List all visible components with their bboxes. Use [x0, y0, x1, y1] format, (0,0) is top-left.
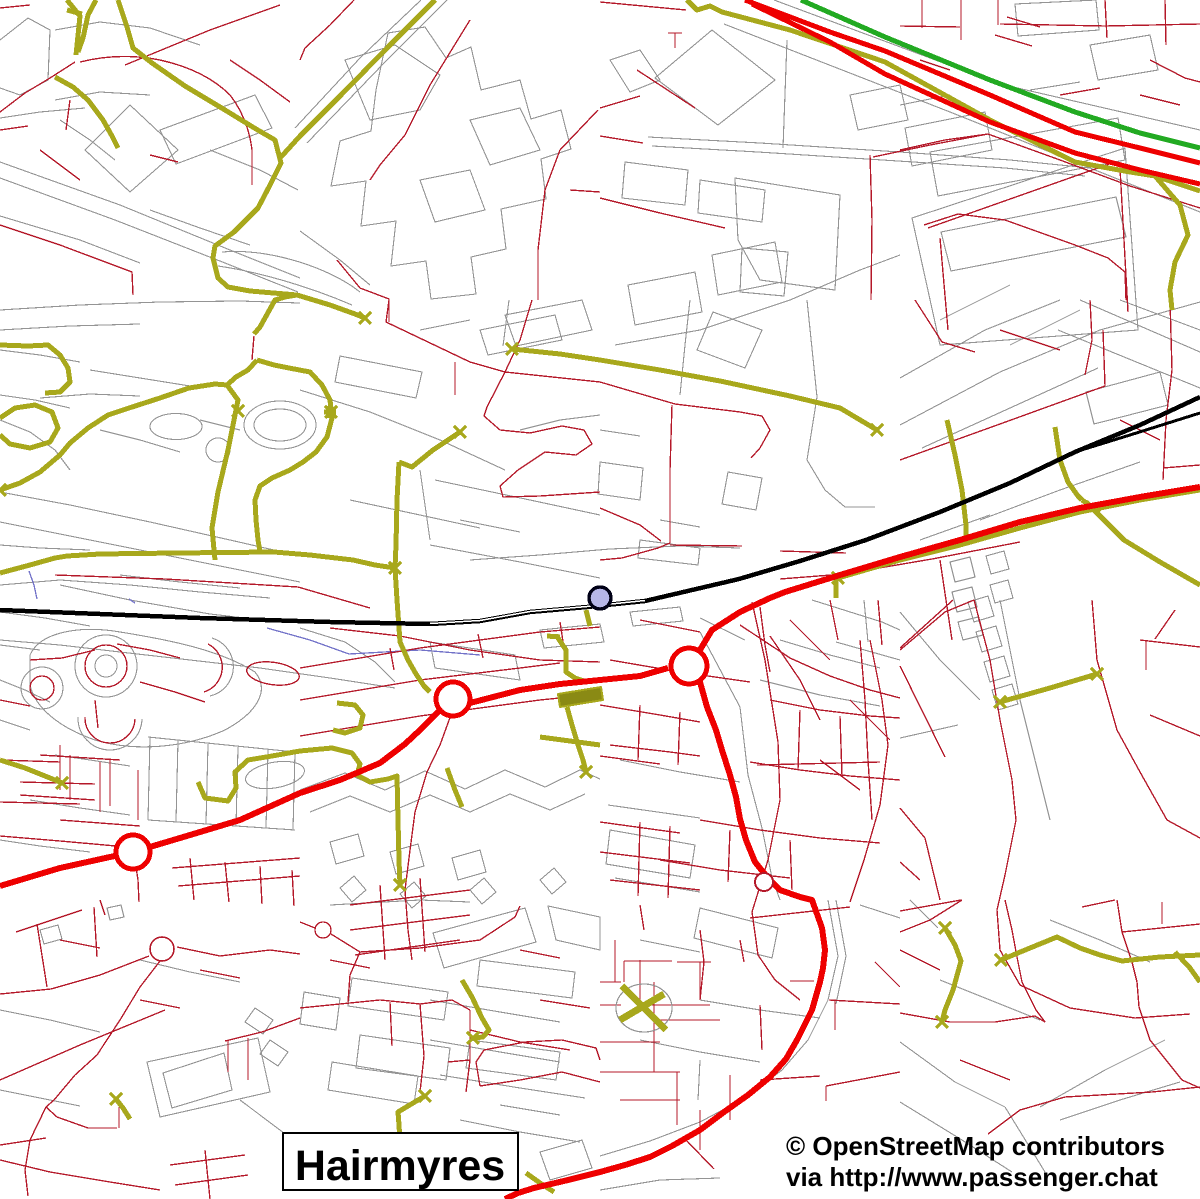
svg-text:© OpenStreetMap contributors: © OpenStreetMap contributors [786, 1131, 1165, 1161]
svg-text:via http://www.passenger.chat: via http://www.passenger.chat [786, 1162, 1158, 1192]
svg-text:Hairmyres: Hairmyres [295, 1142, 505, 1190]
